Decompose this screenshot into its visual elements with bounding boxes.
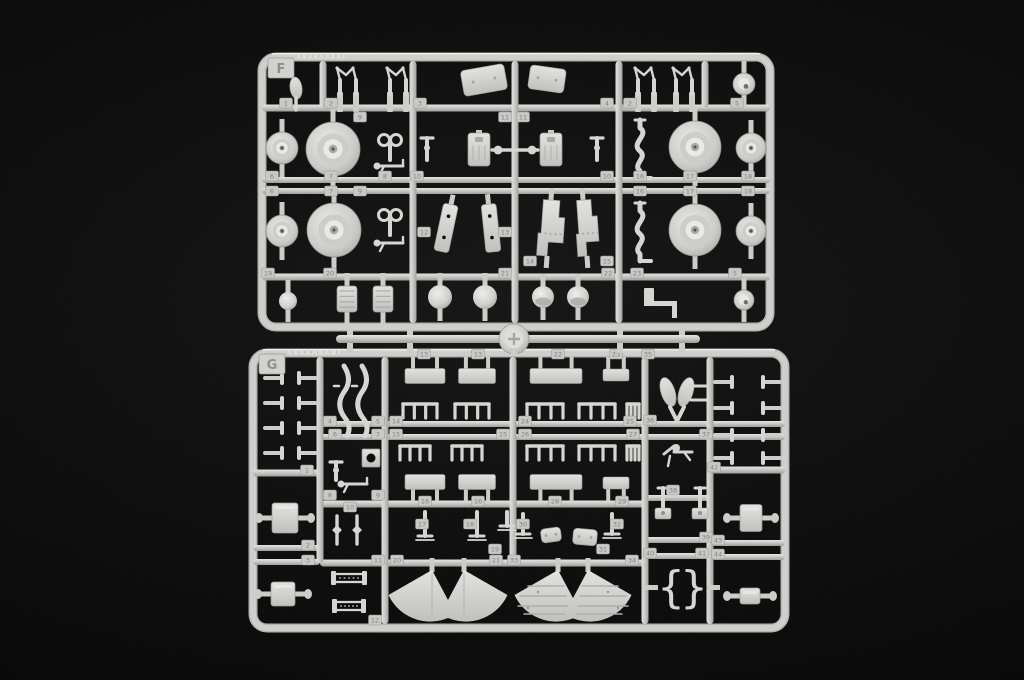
photo-backdrop: 1231111425967810101617186791617181213141… (0, 0, 1024, 680)
sprues-photo: 1231111425967810101617186791617181213141… (0, 0, 1024, 680)
photo-grain (0, 0, 1024, 680)
